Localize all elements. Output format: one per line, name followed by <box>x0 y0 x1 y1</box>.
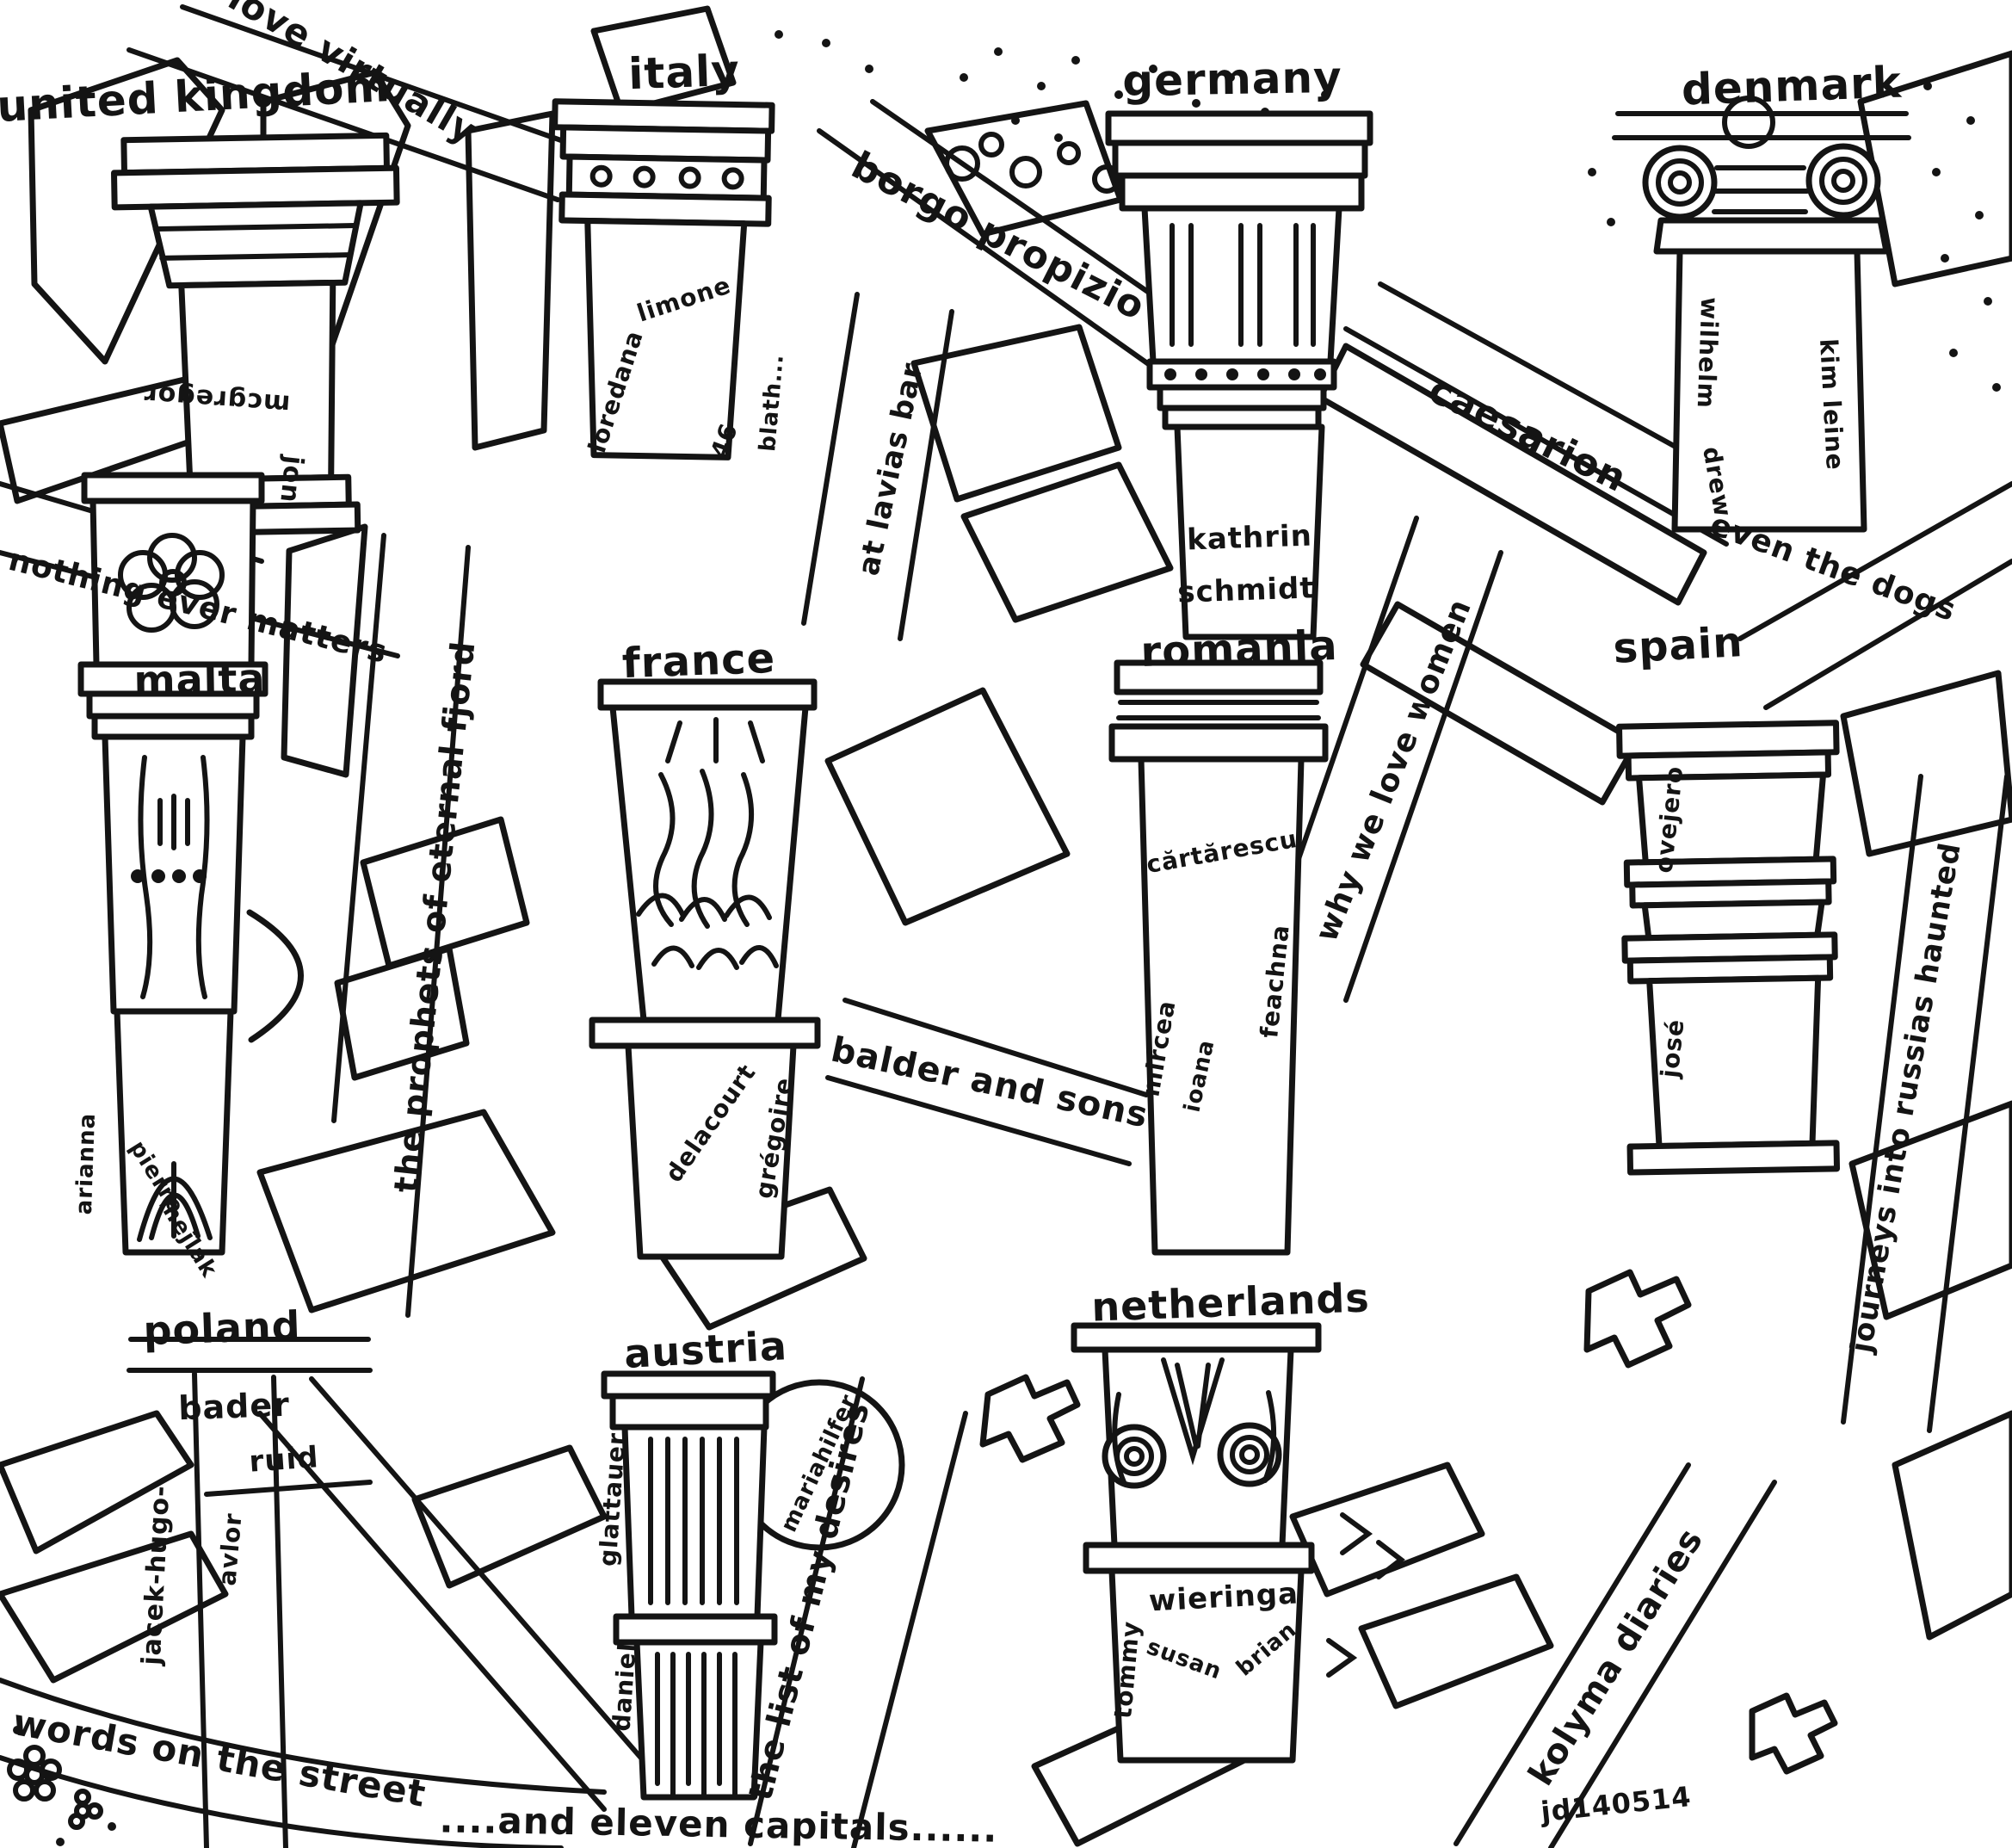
inscription-netherlands-wieringa: wieringa <box>1148 1579 1299 1616</box>
inscription-germany-schmidt: schmidt <box>1177 573 1315 608</box>
label-france: france <box>621 638 776 684</box>
map-drawing <box>0 0 2012 1848</box>
inscription-denmark-wilhelm: wilhelm <box>1694 297 1722 410</box>
outlined-buildings <box>250 327 1835 1771</box>
inscription-poland-script: ruid <box>248 1443 319 1477</box>
column-spain <box>1620 723 1844 1172</box>
map-canvas: united kingdom italy germany denmark mal… <box>0 0 2012 1848</box>
inscription-denmark-kim-leine: kim leine <box>1816 338 1847 472</box>
label-italy: italy <box>627 49 740 96</box>
inscription-uk-jon: jon <box>275 454 306 504</box>
corner-flower-doodles <box>9 1747 101 1827</box>
column-denmark <box>1614 98 1909 529</box>
label-spain: spain <box>1612 621 1744 670</box>
label-malta: malta <box>133 658 266 701</box>
column-france <box>592 682 818 1257</box>
label-austria: austria <box>623 1326 788 1374</box>
label-romania: romania <box>1140 625 1339 673</box>
inscription-germany-kathrin: kathrin <box>1187 521 1313 554</box>
tagline-eleven-capitals: ....and eleven capitals...... <box>439 1802 997 1847</box>
column-italy <box>549 102 772 458</box>
column-romania <box>1112 663 1325 1252</box>
inscription-poland-avlor: avlor <box>215 1512 245 1587</box>
inscription-poland-bader: bader <box>178 1388 291 1425</box>
label-germany: germany <box>1122 56 1342 102</box>
label-netherlands: netherlands <box>1091 1277 1371 1326</box>
label-denmark: denmark <box>1681 61 1903 112</box>
label-poland: poland <box>143 1306 302 1350</box>
inscription-malta-arianna: arianna <box>73 1112 99 1214</box>
inscription-spain-jose: josé <box>1657 1017 1688 1079</box>
inscription-austria-daniel: daniel <box>609 1642 639 1733</box>
